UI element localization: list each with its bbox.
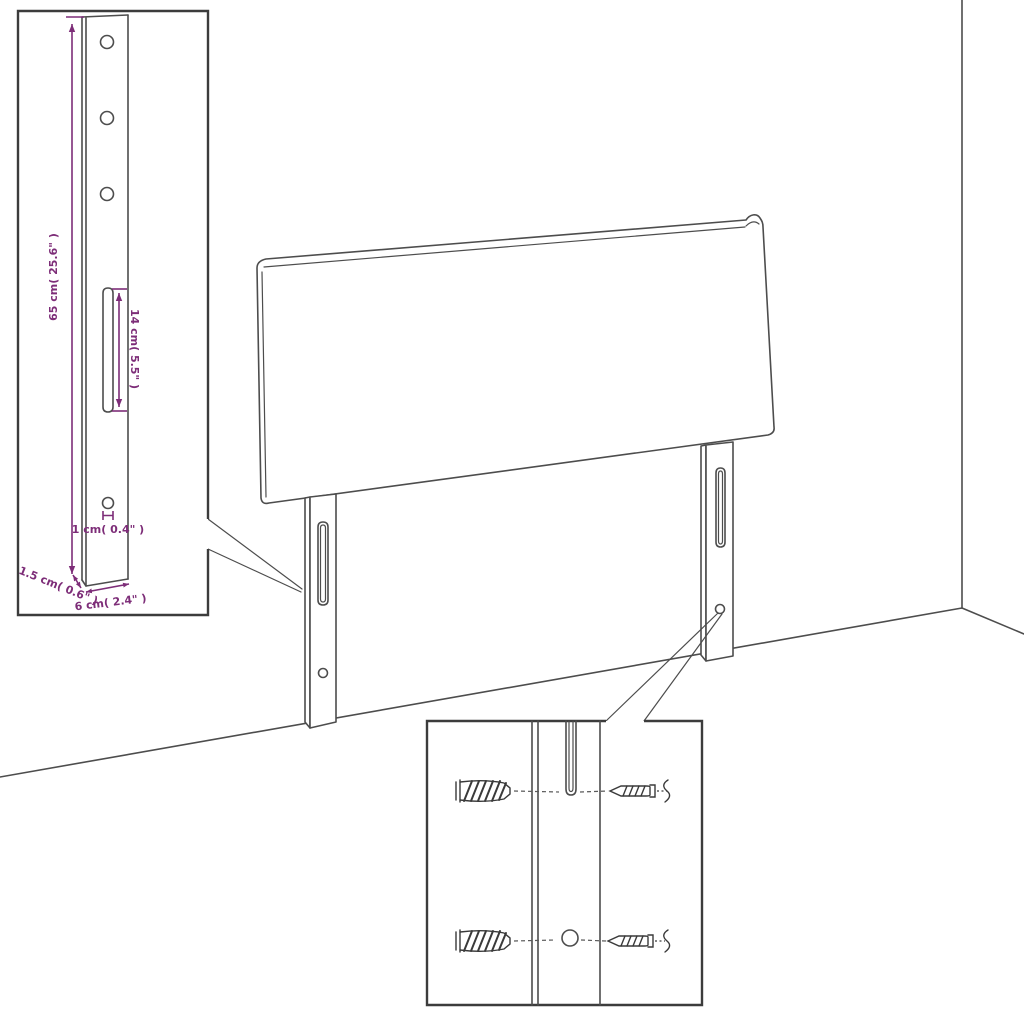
panel-outline xyxy=(257,215,774,504)
right-leg-front-face xyxy=(706,442,733,661)
left-mount-leg xyxy=(305,494,336,728)
assembly-diagram: 65 cm( 25.6" ) 14 cm( 5.5" ) 1 cm( 0.4" … xyxy=(0,0,1024,1024)
headboard-assembly-drawing: 65 cm( 25.6" ) 14 cm( 5.5" ) 1 cm( 0.4" … xyxy=(0,0,1024,1024)
hardware-inset-callout-right xyxy=(644,614,722,721)
floor-line-right xyxy=(962,608,1024,634)
callout-lines xyxy=(208,519,722,721)
hardware-detail-inset xyxy=(427,721,702,1005)
dim-label-slot-length: 14 cm( 5.5" ) xyxy=(128,309,141,389)
leg-inset-callout-lower xyxy=(208,549,301,592)
headboard-panel xyxy=(257,215,774,504)
left-leg-front-face xyxy=(310,494,336,728)
dim-label-leg-height: 65 cm( 25.6" ) xyxy=(47,233,60,321)
right-mount-leg xyxy=(701,442,733,661)
leg-inset-callout-upper xyxy=(208,519,302,589)
hardware-inset-background xyxy=(427,721,702,1005)
leg-detail-inset: 65 cm( 25.6" ) 14 cm( 5.5" ) 1 cm( 0.4" … xyxy=(17,11,208,615)
dim-label-hole: 1 cm( 0.4" ) xyxy=(72,523,144,536)
